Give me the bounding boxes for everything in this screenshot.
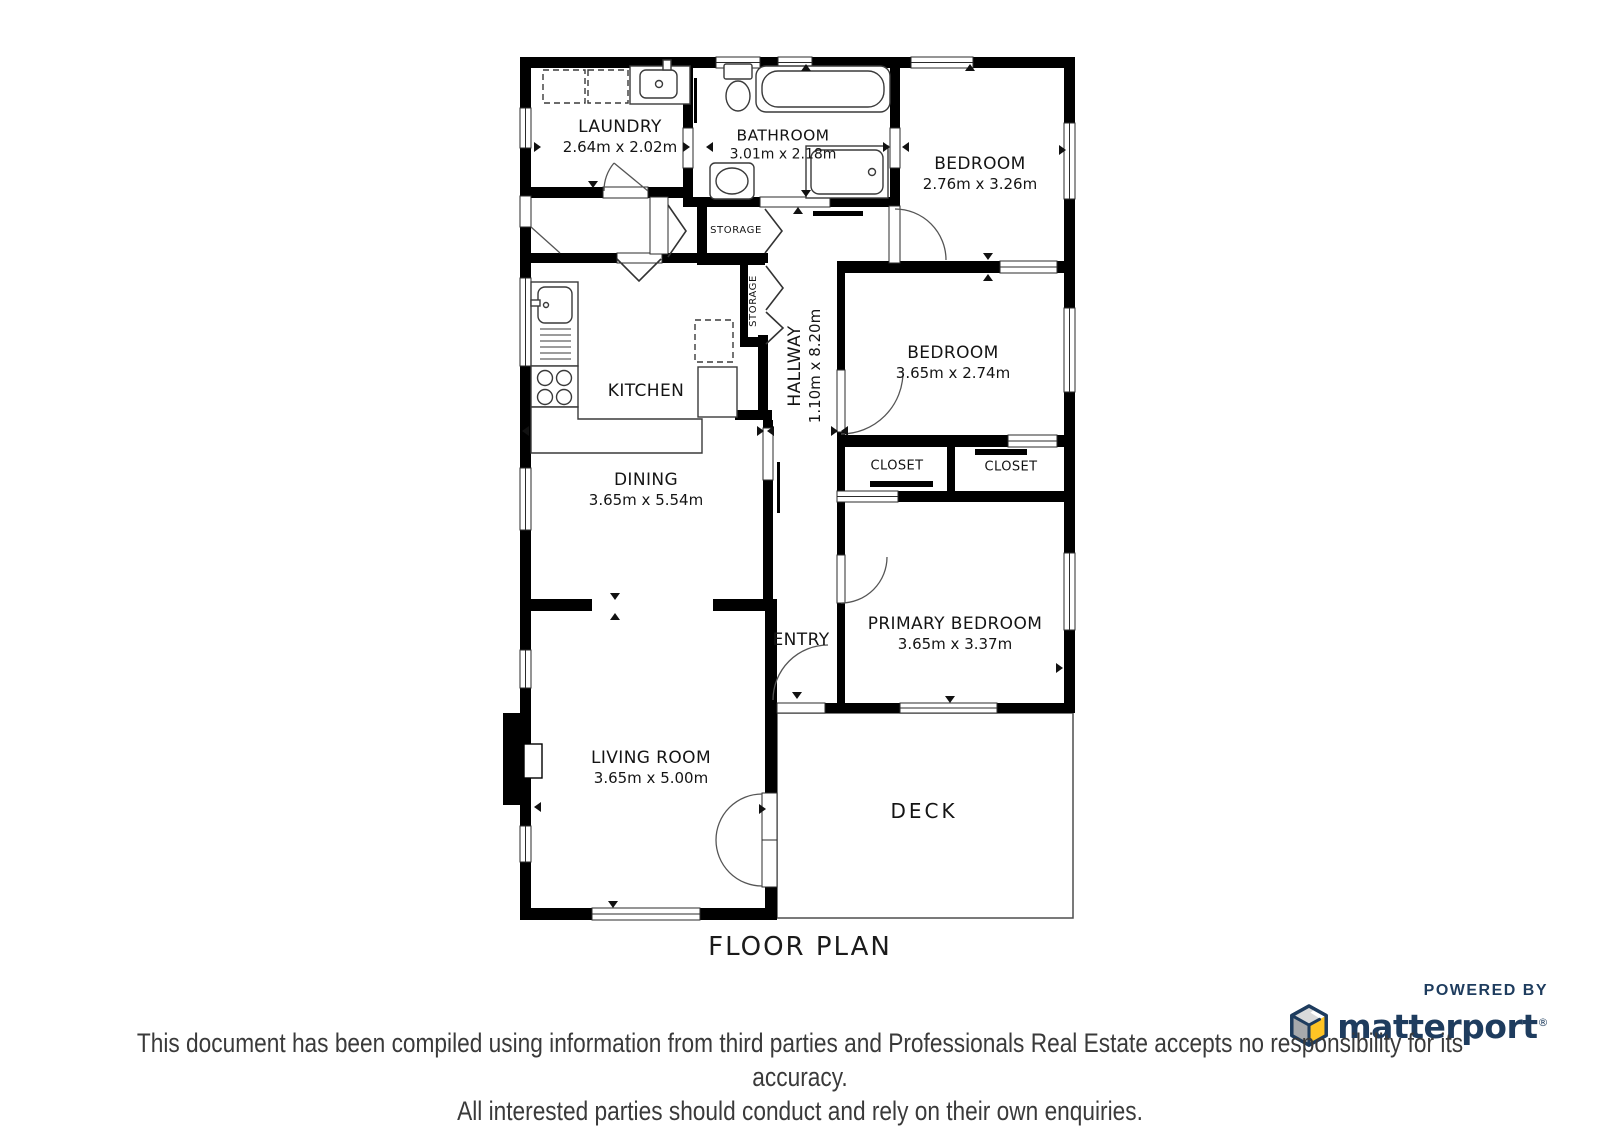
floor-plan-page: LAUNDRY 2.64m x 2.02m BATHROOM 3.01m x 2… — [0, 0, 1600, 1131]
room-label-kitchen: KITCHEN — [608, 381, 684, 401]
stove-icon — [531, 366, 578, 407]
disclaimer-text: This document has been compiled using in… — [128, 1026, 1472, 1128]
disclaimer-line-1: This document has been compiled using in… — [128, 1026, 1472, 1094]
dryer-icon — [588, 70, 628, 103]
laundry-sink-icon — [630, 60, 690, 104]
kitchen-counter — [531, 407, 702, 453]
kitchen-counter-east — [698, 367, 737, 417]
room-label-laundry: LAUNDRY 2.64m x 2.02m — [563, 117, 677, 157]
room-label-entry: ENTRY — [773, 630, 830, 650]
fridge-icon — [695, 320, 733, 362]
room-label-bathroom: BATHROOM 3.01m x 2.18m — [730, 127, 837, 164]
registered-mark: ® — [1538, 1016, 1549, 1029]
room-label-primary-bedroom: PRIMARY BEDROOM 3.65m x 3.37m — [868, 614, 1043, 654]
kitchen-sink-icon — [531, 282, 578, 366]
room-label-bedroom-top: BEDROOM 2.76m x 3.26m — [923, 154, 1037, 194]
floor-plan-title: FLOOR PLAN — [708, 932, 892, 962]
room-label-deck: DECK — [890, 800, 957, 824]
room-label-storage-lower: STORAGE — [748, 275, 760, 327]
disclaimer-line-2: All interested parties should conduct an… — [128, 1094, 1472, 1128]
fireplace-icon — [524, 744, 542, 778]
powered-by-label: POWERED BY — [1288, 982, 1548, 1000]
room-label-bedroom-mid: BEDROOM 3.65m x 2.74m — [896, 343, 1010, 383]
fixtures — [524, 60, 890, 778]
washer-icon — [543, 70, 585, 103]
room-label-living-room: LIVING ROOM 3.65m x 5.00m — [591, 748, 711, 788]
room-label-hallway: HALLWAY 1.10m x 8.20m — [785, 309, 825, 423]
room-label-closet-left: CLOSET — [871, 458, 924, 473]
bathroom-sink-icon — [710, 163, 754, 199]
room-label-closet-right: CLOSET — [985, 459, 1038, 474]
toilet-icon — [724, 64, 752, 111]
room-label-storage-upper: STORAGE — [710, 225, 762, 237]
bathtub-icon — [756, 66, 890, 112]
room-label-dining: DINING 3.65m x 5.54m — [589, 470, 703, 510]
